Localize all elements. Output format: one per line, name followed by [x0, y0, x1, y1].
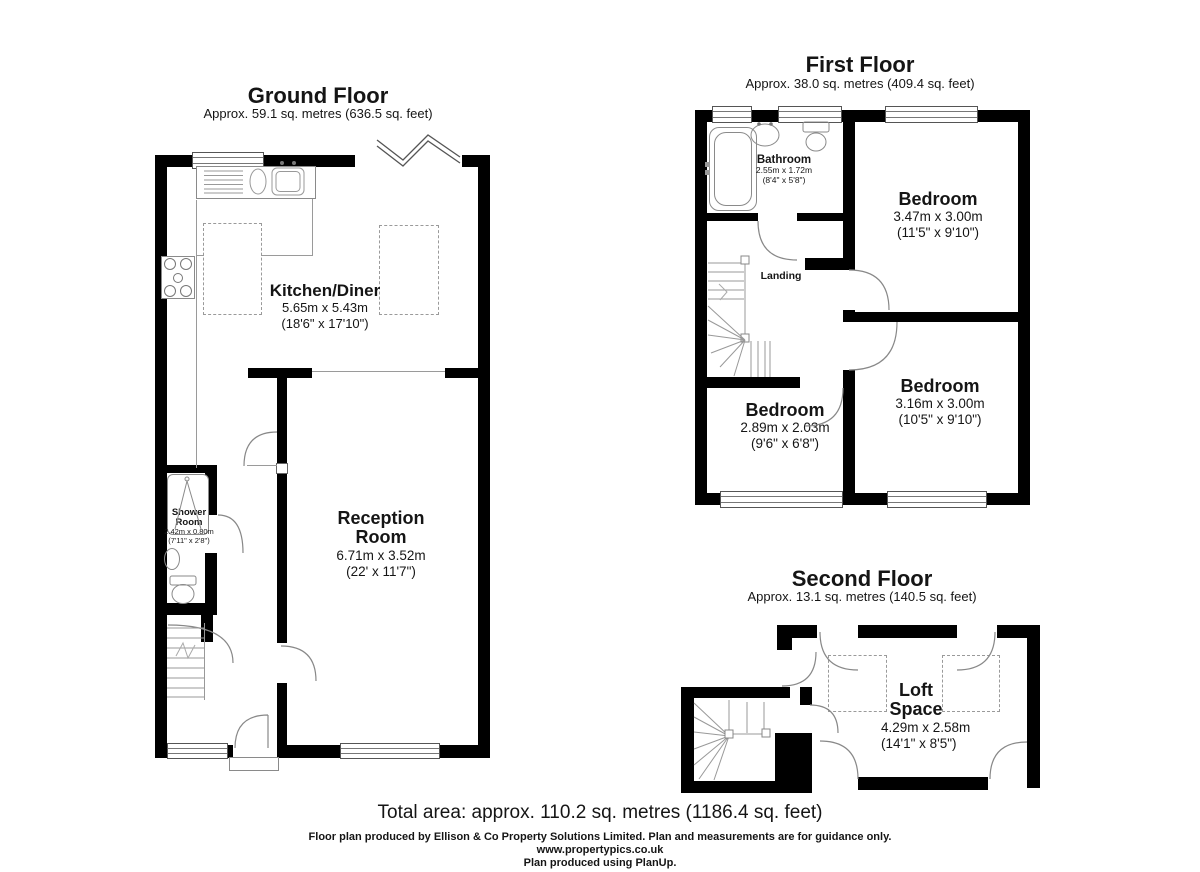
window [712, 106, 752, 123]
window [778, 106, 842, 123]
wall [681, 687, 790, 698]
door-arc [849, 270, 889, 310]
room-label-bedroom-1: Bedroom 3.47m x 3.00m (11'5" x 9'10") [868, 190, 1008, 241]
window [720, 491, 843, 508]
wall [277, 368, 287, 643]
kitchen-sink-unit [196, 166, 316, 199]
wall [797, 213, 843, 221]
door-arc [281, 646, 316, 681]
ground-floor-subtitle: Approx. 59.1 sq. metres (636.5 sq. feet) [203, 107, 432, 121]
wall [843, 122, 855, 258]
room-dims-imperial: (10'5" x 9'10") [870, 412, 1010, 428]
opening-line [312, 371, 445, 372]
wall [858, 777, 988, 790]
ground-floor-title: Ground Floor [248, 84, 389, 107]
porch-step [229, 757, 279, 771]
wall [777, 625, 817, 638]
door-arc [849, 322, 897, 370]
second-floor-title: Second Floor [792, 567, 933, 590]
footer-website: www.propertypics.co.uk [537, 844, 664, 857]
room-name: Bedroom [870, 377, 1010, 396]
wall [858, 625, 957, 638]
room-dims-metric: 3.16m x 3.00m [870, 396, 1010, 412]
wall [843, 312, 1030, 322]
room-dims-imperial: (11'5" x 9'10") [868, 225, 1008, 241]
wall [695, 110, 707, 505]
front-door-arc [235, 715, 268, 748]
room-dims-imperial: (14'1" x 8'5") [881, 736, 951, 752]
room-label-kitchen-diner: Kitchen/Diner 5.65m x 5.43m (18'6" x 17'… [250, 282, 400, 331]
wall [155, 155, 167, 758]
room-label-bathroom: Bathroom 2.55m x 1.72m (8'4" x 5'8") [734, 154, 834, 186]
door-leaf-line [247, 465, 277, 466]
room-dims-imperial: (9'6" x 6'8") [715, 436, 855, 452]
footer-produced-with: Plan produced using PlanUp. [524, 857, 677, 870]
room-label-bedroom-3: Bedroom 3.16m x 3.00m (10'5" x 9'10") [870, 377, 1010, 428]
door-arc [820, 741, 858, 779]
room-name: Kitchen/Diner [250, 282, 400, 300]
room-dims-metric: 5.65m x 5.43m [250, 300, 400, 315]
wall [445, 368, 478, 378]
room-dims-imperial: (18'6" x 17'10") [250, 316, 400, 331]
room-name: Bedroom [868, 190, 1008, 209]
first-floor-title: First Floor [806, 53, 915, 76]
room-name: Loft Space [881, 681, 951, 720]
wall [478, 155, 490, 758]
room-dims-imperial: (8'4" x 5'8") [734, 176, 834, 186]
wall [800, 687, 812, 705]
wall [775, 733, 812, 781]
room-dims-imperial: (7'11" x 2'8") [162, 537, 216, 546]
room-label-loft-space: Loft Space 4.29m x 2.58m (14'1" x 8'5") [881, 681, 951, 752]
hob [161, 256, 195, 299]
total-area-text: Total area: approx. 110.2 sq. metres (11… [378, 803, 823, 824]
wall-break-symbol [377, 135, 460, 166]
wall [155, 603, 217, 615]
room-name: Landing [741, 271, 821, 282]
room-label-shower-room: Shower Room 2.42m x 0.80m (7'11" x 2'8") [162, 508, 216, 545]
wall [277, 683, 287, 745]
room-name: Reception Room [326, 509, 436, 548]
room-dims-metric: 2.89m x 2.03m [715, 420, 855, 436]
room-dims-metric: 3.47m x 3.00m [868, 209, 1008, 225]
second-stairs [694, 700, 770, 780]
counter-line [196, 200, 197, 468]
door-arc [758, 221, 797, 260]
door-arc [782, 652, 816, 686]
door-arc [990, 742, 1027, 779]
wall [681, 781, 812, 793]
wall [805, 258, 855, 270]
door-arc [244, 432, 277, 466]
room-label-bedroom-2: Bedroom 2.89m x 2.03m (9'6" x 6'8") [715, 401, 855, 452]
room-dims-imperial: (22' x 11'7") [326, 564, 436, 580]
room-label-reception-room: Reception Room 6.71m x 3.52m (22' x 11'7… [326, 509, 436, 580]
ground-stairs [167, 623, 205, 700]
wall [695, 213, 758, 221]
footer-disclaimer: Floor plan produced by Ellison & Co Prop… [309, 831, 892, 844]
room-dims-metric: 4.29m x 2.58m [881, 720, 951, 736]
room-name: Bedroom [715, 401, 855, 420]
second-floor-subtitle: Approx. 13.1 sq. metres (140.5 sq. feet) [747, 590, 976, 604]
wall [201, 615, 213, 642]
room-name: Shower Room [162, 508, 216, 528]
first-floor-subtitle: Approx. 38.0 sq. metres (409.4 sq. feet) [745, 77, 974, 91]
wall [777, 638, 792, 650]
floorplan-page: Ground Floor Approx. 59.1 sq. metres (63… [0, 0, 1200, 872]
door-jamb [276, 463, 288, 474]
wall [681, 687, 694, 793]
dashed-eaves-area [828, 655, 887, 712]
window [167, 743, 228, 759]
window [885, 106, 978, 123]
room-label-landing: Landing [741, 271, 821, 282]
wall [1018, 110, 1030, 505]
wall [695, 377, 800, 388]
door-arc [218, 515, 243, 553]
wall [1027, 625, 1040, 788]
counter-line [261, 255, 313, 256]
window [887, 491, 987, 508]
window [340, 743, 440, 759]
room-dims-metric: 6.71m x 3.52m [326, 548, 436, 564]
